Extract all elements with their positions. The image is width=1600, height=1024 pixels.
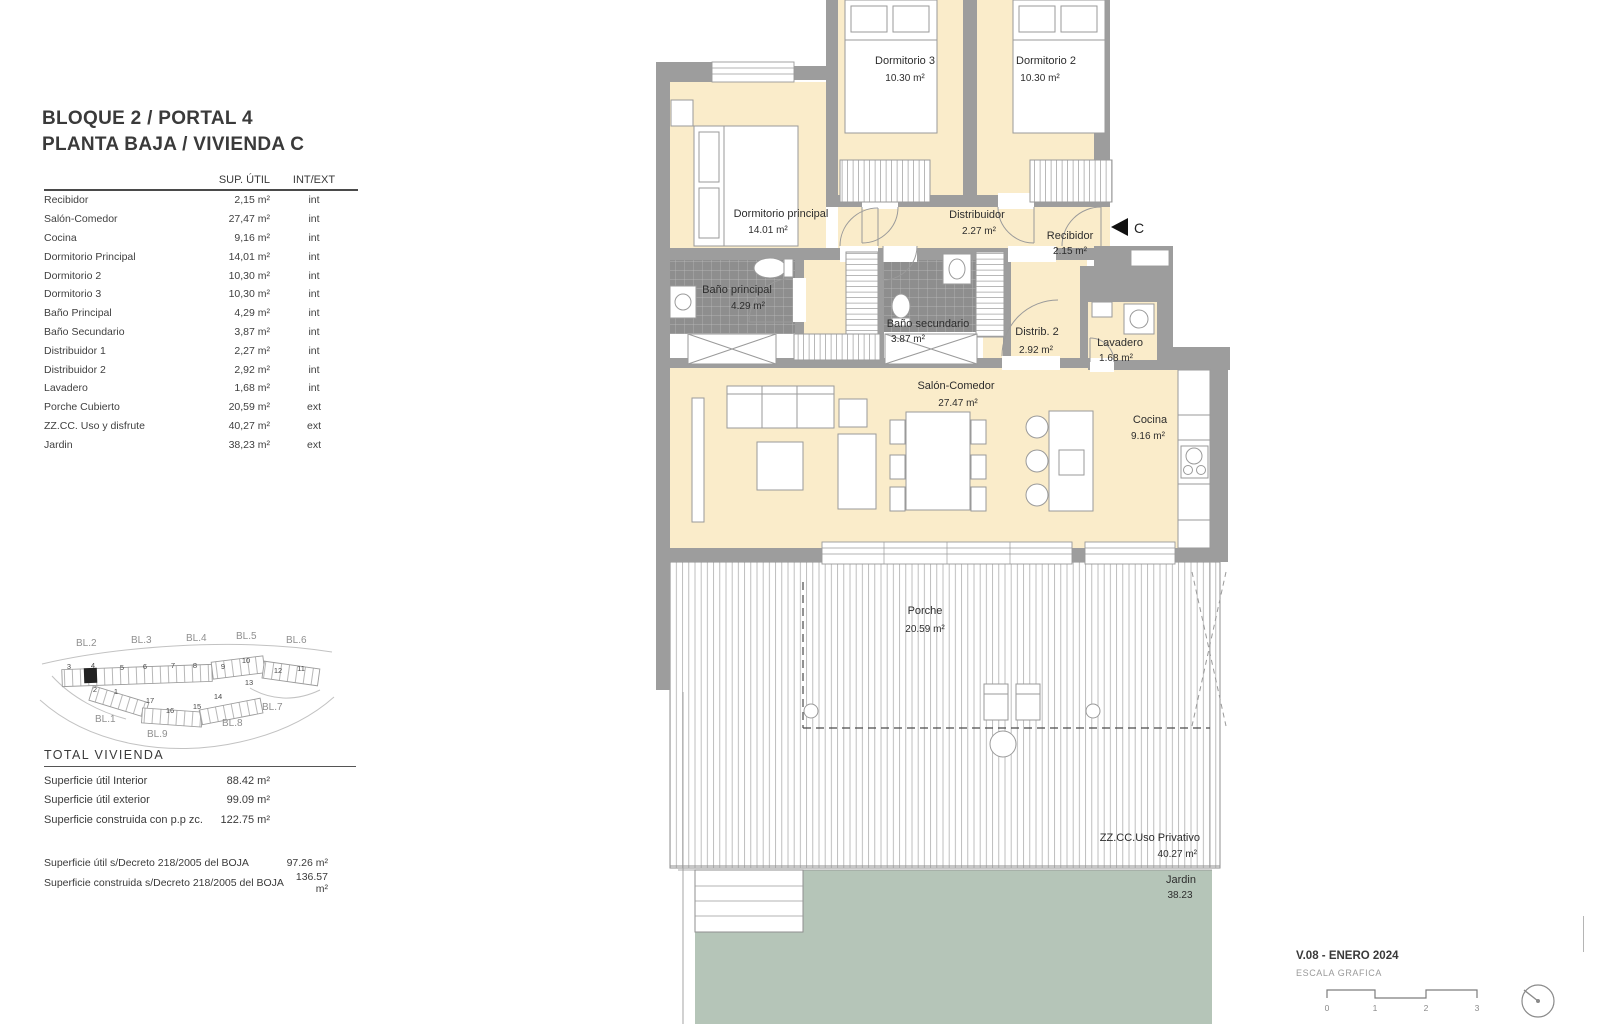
total-value: 122.75 m²: [203, 814, 270, 826]
page-title: BLOQUE 2 / PORTAL 4 PLANTA BAJA / VIVIEN…: [42, 106, 304, 158]
portal-number: 13: [245, 678, 253, 687]
sup-value: 20,59 m²: [206, 401, 270, 413]
label-dormitorio3: Dormitorio 3: [875, 55, 935, 67]
sup-value: 2,27 m²: [206, 345, 270, 357]
total-row: Superficie útil exterior99.09 m²: [44, 791, 270, 811]
boja-rows: Superficie útil s/Decreto 218/2005 del B…: [44, 853, 328, 893]
table-row: Baño Principal4,29 m²int: [44, 304, 358, 323]
table-row: Lavadero1,68 m²int: [44, 379, 358, 398]
room-label: Distribuidor 2: [44, 364, 206, 376]
minimap-roads: [40, 644, 334, 748]
portal-number: 16: [166, 706, 174, 715]
entrance-arrow-icon: [1111, 218, 1128, 236]
total-value: 99.09 m²: [200, 794, 270, 806]
table-row: Distribuidor 22,92 m²int: [44, 360, 358, 379]
area-table: SUP. ÚTIL INT/EXT Recibidor2,15 m²intSal…: [44, 168, 358, 454]
label-dormitorio2: Dormitorio 2: [1016, 55, 1076, 67]
table-row: Recibidor2,15 m²int: [44, 191, 358, 210]
label-zzcc: ZZ.CC.Uso Privativo: [1100, 832, 1200, 844]
total-row: Superficie construida s/Decreto 218/2005…: [44, 873, 328, 893]
total-value: 97.26 m²: [258, 857, 328, 869]
area-table-header: SUP. ÚTIL INT/EXT: [44, 168, 358, 191]
total-value: 88.42 m²: [200, 775, 270, 787]
sup-value: 1,68 m²: [206, 382, 270, 394]
sup-value: 9,16 m²: [206, 232, 270, 244]
portal-number: 14: [214, 692, 222, 701]
portal-number: 12: [274, 666, 282, 675]
area-bano-ppal: 4.29 m²: [731, 301, 766, 312]
room-label: Baño Principal: [44, 307, 206, 319]
portal-number: 3: [67, 662, 71, 671]
col-int-ext: INT/EXT: [270, 174, 358, 186]
room-label: Distribuidor 1: [44, 345, 206, 357]
sup-value: 38,23 m²: [206, 439, 270, 451]
area-distribuidor: 2.27 m²: [962, 226, 997, 237]
total-label: Superficie útil exterior: [44, 794, 200, 806]
label-bano-ppal: Baño principal: [702, 284, 772, 296]
sup-value: 2,92 m²: [206, 364, 270, 376]
minimap-highlight-unit: [84, 668, 98, 683]
block-label: BL.7: [262, 702, 283, 713]
area-distrib2: 2.92 m²: [1019, 345, 1054, 356]
area-recibidor: 2.15 m²: [1053, 246, 1088, 257]
table-row: Dormitorio 310,30 m²int: [44, 285, 358, 304]
portal-number: 2: [93, 685, 97, 694]
label-recibidor: Recibidor: [1047, 230, 1094, 242]
sup-value: 2,15 m²: [206, 194, 270, 206]
portal-number: 1: [114, 687, 118, 696]
room-label: Dormitorio 2: [44, 270, 206, 282]
room-label: Recibidor: [44, 194, 206, 206]
block-label: BL.2: [76, 638, 97, 649]
site-minimap: BL.2BL.3BL.4BL.5BL.6BL.1BL.9BL.8BL.7 345…: [35, 616, 337, 750]
table-row: Jardin38,23 m²ext: [44, 435, 358, 454]
area-zzcc: 40.27 m²: [1158, 849, 1198, 860]
area-dormitorio3: 10.30 m²: [885, 73, 925, 84]
room-label: Salón-Comedor: [44, 213, 206, 225]
boja-section: Superficie útil s/Decreto 218/2005 del B…: [44, 853, 328, 893]
loc-value: ext: [270, 401, 358, 413]
area-dormitorio2: 10.30 m²: [1020, 73, 1060, 84]
area-bano-sec: 3.87 m²: [891, 334, 926, 345]
floorplan-page: BLOQUE 2 / PORTAL 4 PLANTA BAJA / VIVIEN…: [0, 0, 1600, 1024]
loc-value: int: [270, 326, 358, 338]
loc-value: int: [270, 345, 358, 357]
garden-steps: [695, 870, 803, 932]
portal-number: 7: [171, 661, 175, 670]
table-row: ZZ.CC. Uso y disfrute40,27 m²ext: [44, 417, 358, 436]
area-dorm-ppal: 14.01 m²: [748, 225, 788, 236]
room-label: ZZ.CC. Uso y disfrute: [44, 420, 206, 432]
floor-plan-svg: C Dormitorio 3 10.30 m² Dormitorio 2 10.…: [640, 0, 1600, 1024]
loc-value: int: [270, 213, 358, 225]
portal-number: 8: [193, 661, 197, 670]
loc-value: int: [270, 288, 358, 300]
totals-section: TOTAL VIVIENDA Superficie útil Interior8…: [44, 748, 356, 830]
room-label: Jardin: [44, 439, 206, 451]
room-label: Baño Secundario: [44, 326, 206, 338]
room-label: Cocina: [44, 232, 206, 244]
label-lavadero: Lavadero: [1097, 337, 1143, 349]
loc-value: int: [270, 194, 358, 206]
total-row: Superficie útil Interior88.42 m²: [44, 771, 270, 791]
loc-value: ext: [270, 439, 358, 451]
area-jardin: 38.23: [1167, 890, 1192, 901]
area-table-rows: Recibidor2,15 m²intSalón-Comedor27,47 m²…: [44, 191, 358, 454]
portal-number: 5: [120, 663, 124, 672]
portal-number: 15: [193, 702, 201, 711]
col-sup-util: SUP. ÚTIL: [206, 174, 270, 186]
room-label: Lavadero: [44, 382, 206, 394]
block-label: BL.9: [147, 729, 168, 740]
block-label: BL.5: [236, 631, 257, 642]
table-row: Baño Secundario3,87 m²int: [44, 323, 358, 342]
table-row: Distribuidor 12,27 m²int: [44, 341, 358, 360]
sup-value: 40,27 m²: [206, 420, 270, 432]
block-label: BL.8: [222, 718, 243, 729]
label-bano-sec: Baño secundario: [887, 318, 970, 330]
area-salon: 27.47 m²: [938, 398, 978, 409]
label-distrib2: Distrib. 2: [1015, 326, 1058, 338]
entrance-letter: C: [1134, 220, 1144, 236]
loc-value: int: [270, 251, 358, 263]
table-row: Dormitorio Principal14,01 m²int: [44, 247, 358, 266]
loc-value: ext: [270, 420, 358, 432]
sup-value: 10,30 m²: [206, 270, 270, 282]
label-cocina: Cocina: [1133, 414, 1168, 426]
entrance-marker: C: [1111, 218, 1144, 236]
table-row: Salón-Comedor27,47 m²int: [44, 210, 358, 229]
label-salon: Salón-Comedor: [917, 380, 994, 392]
block-label: BL.6: [286, 635, 307, 646]
loc-value: int: [270, 307, 358, 319]
portal-number: 9: [221, 662, 225, 671]
loc-value: int: [270, 382, 358, 394]
portal-number: 10: [242, 656, 250, 665]
totals-heading: TOTAL VIVIENDA: [44, 748, 356, 767]
room-label: Dormitorio Principal: [44, 251, 206, 263]
room-label: Porche Cubierto: [44, 401, 206, 413]
area-lavadero: 1.68 m²: [1099, 353, 1134, 364]
sup-value: 3,87 m²: [206, 326, 270, 338]
portal-number: 4: [91, 661, 95, 670]
total-label: Superficie útil s/Decreto 218/2005 del B…: [44, 857, 258, 869]
loc-value: int: [270, 270, 358, 282]
block-label: BL.3: [131, 635, 152, 646]
total-row: Superficie útil s/Decreto 218/2005 del B…: [44, 853, 328, 873]
block-label: BL.1: [95, 714, 116, 725]
total-label: Superficie útil Interior: [44, 775, 200, 787]
loc-value: int: [270, 232, 358, 244]
label-porche: Porche: [908, 605, 943, 617]
loc-value: int: [270, 364, 358, 376]
sup-value: 14,01 m²: [206, 251, 270, 263]
portal-number: 11: [297, 664, 305, 673]
label-distribuidor: Distribuidor: [949, 209, 1005, 221]
label-dorm-ppal: Dormitorio principal: [734, 208, 829, 220]
title-line-2: PLANTA BAJA / VIVIENDA C: [42, 132, 304, 158]
portal-number: 17: [146, 696, 154, 705]
table-row: Porche Cubierto20,59 m²ext: [44, 398, 358, 417]
portal-number: 6: [143, 662, 147, 671]
sup-value: 27,47 m²: [206, 213, 270, 225]
label-jardin: Jardin: [1166, 874, 1196, 886]
total-label: Superficie construida s/Decreto 218/2005…: [44, 877, 284, 889]
table-row: Dormitorio 210,30 m²int: [44, 266, 358, 285]
totals-rows: Superficie útil Interior88.42 m²Superfic…: [44, 771, 356, 830]
area-cocina: 9.16 m²: [1131, 431, 1166, 442]
area-porche: 20.59 m²: [905, 624, 945, 635]
table-row: Cocina9,16 m²int: [44, 229, 358, 248]
block-label: BL.4: [186, 633, 207, 644]
sup-value: 4,29 m²: [206, 307, 270, 319]
total-label: Superficie construida con p.p zc.: [44, 814, 203, 826]
title-line-1: BLOQUE 2 / PORTAL 4: [42, 106, 304, 132]
total-row: Superficie construida con p.p zc.122.75 …: [44, 810, 270, 830]
porche-deck: [670, 562, 1220, 868]
total-value: 136.57 m²: [284, 871, 328, 895]
sup-value: 10,30 m²: [206, 288, 270, 300]
room-label: Dormitorio 3: [44, 288, 206, 300]
